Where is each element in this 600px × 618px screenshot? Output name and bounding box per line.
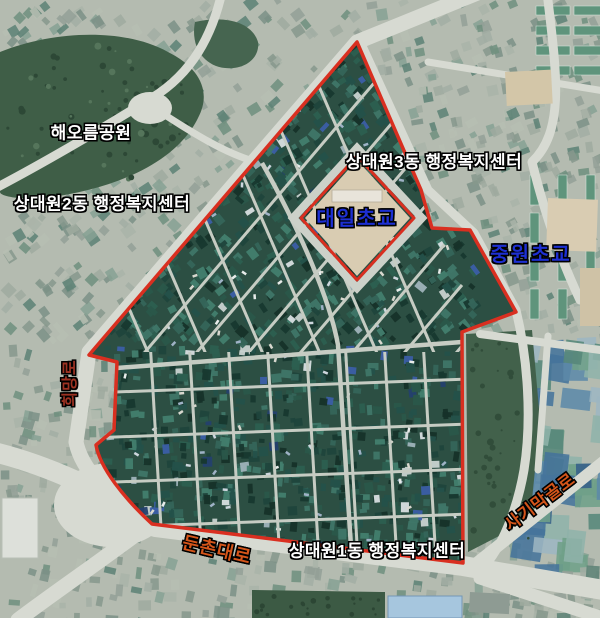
map-canvas <box>0 0 600 618</box>
satellite-map: 해오름공원 상대원2동 행정복지센터 상대원3동 행정복지센터 대일초교 중원초… <box>0 0 600 618</box>
